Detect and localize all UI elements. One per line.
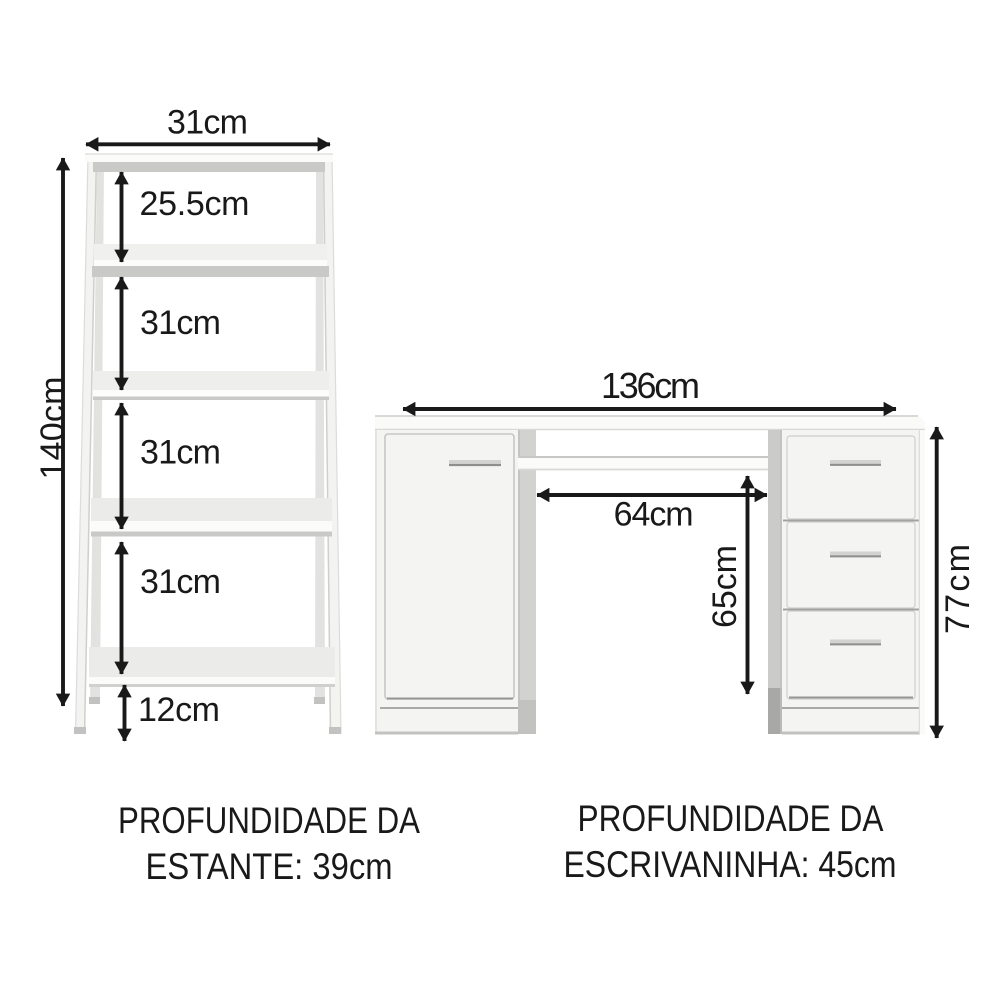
svg-text:65cm: 65cm	[706, 545, 744, 628]
svg-text:PROFUNDIDADE DA: PROFUNDIDADE DA	[578, 798, 884, 839]
svg-text:136cm: 136cm	[601, 365, 700, 406]
svg-text:ESCRIVANINHA: 45cm: ESCRIVANINHA: 45cm	[564, 844, 897, 885]
svg-text:12cm: 12cm	[138, 691, 220, 729]
svg-text:31cm: 31cm	[140, 434, 221, 472]
svg-text:140cm: 140cm	[34, 377, 72, 480]
svg-text:31cm: 31cm	[167, 104, 248, 142]
svg-text:ESTANTE: 39cm: ESTANTE: 39cm	[146, 846, 393, 887]
svg-text:31cm: 31cm	[140, 304, 221, 342]
svg-text:PROFUNDIDADE DA: PROFUNDIDADE DA	[118, 800, 420, 841]
svg-text:64cm: 64cm	[614, 496, 694, 534]
svg-text:31cm: 31cm	[140, 563, 221, 601]
svg-text:25.5cm: 25.5cm	[140, 185, 250, 223]
svg-text:77cm: 77cm	[939, 544, 977, 634]
